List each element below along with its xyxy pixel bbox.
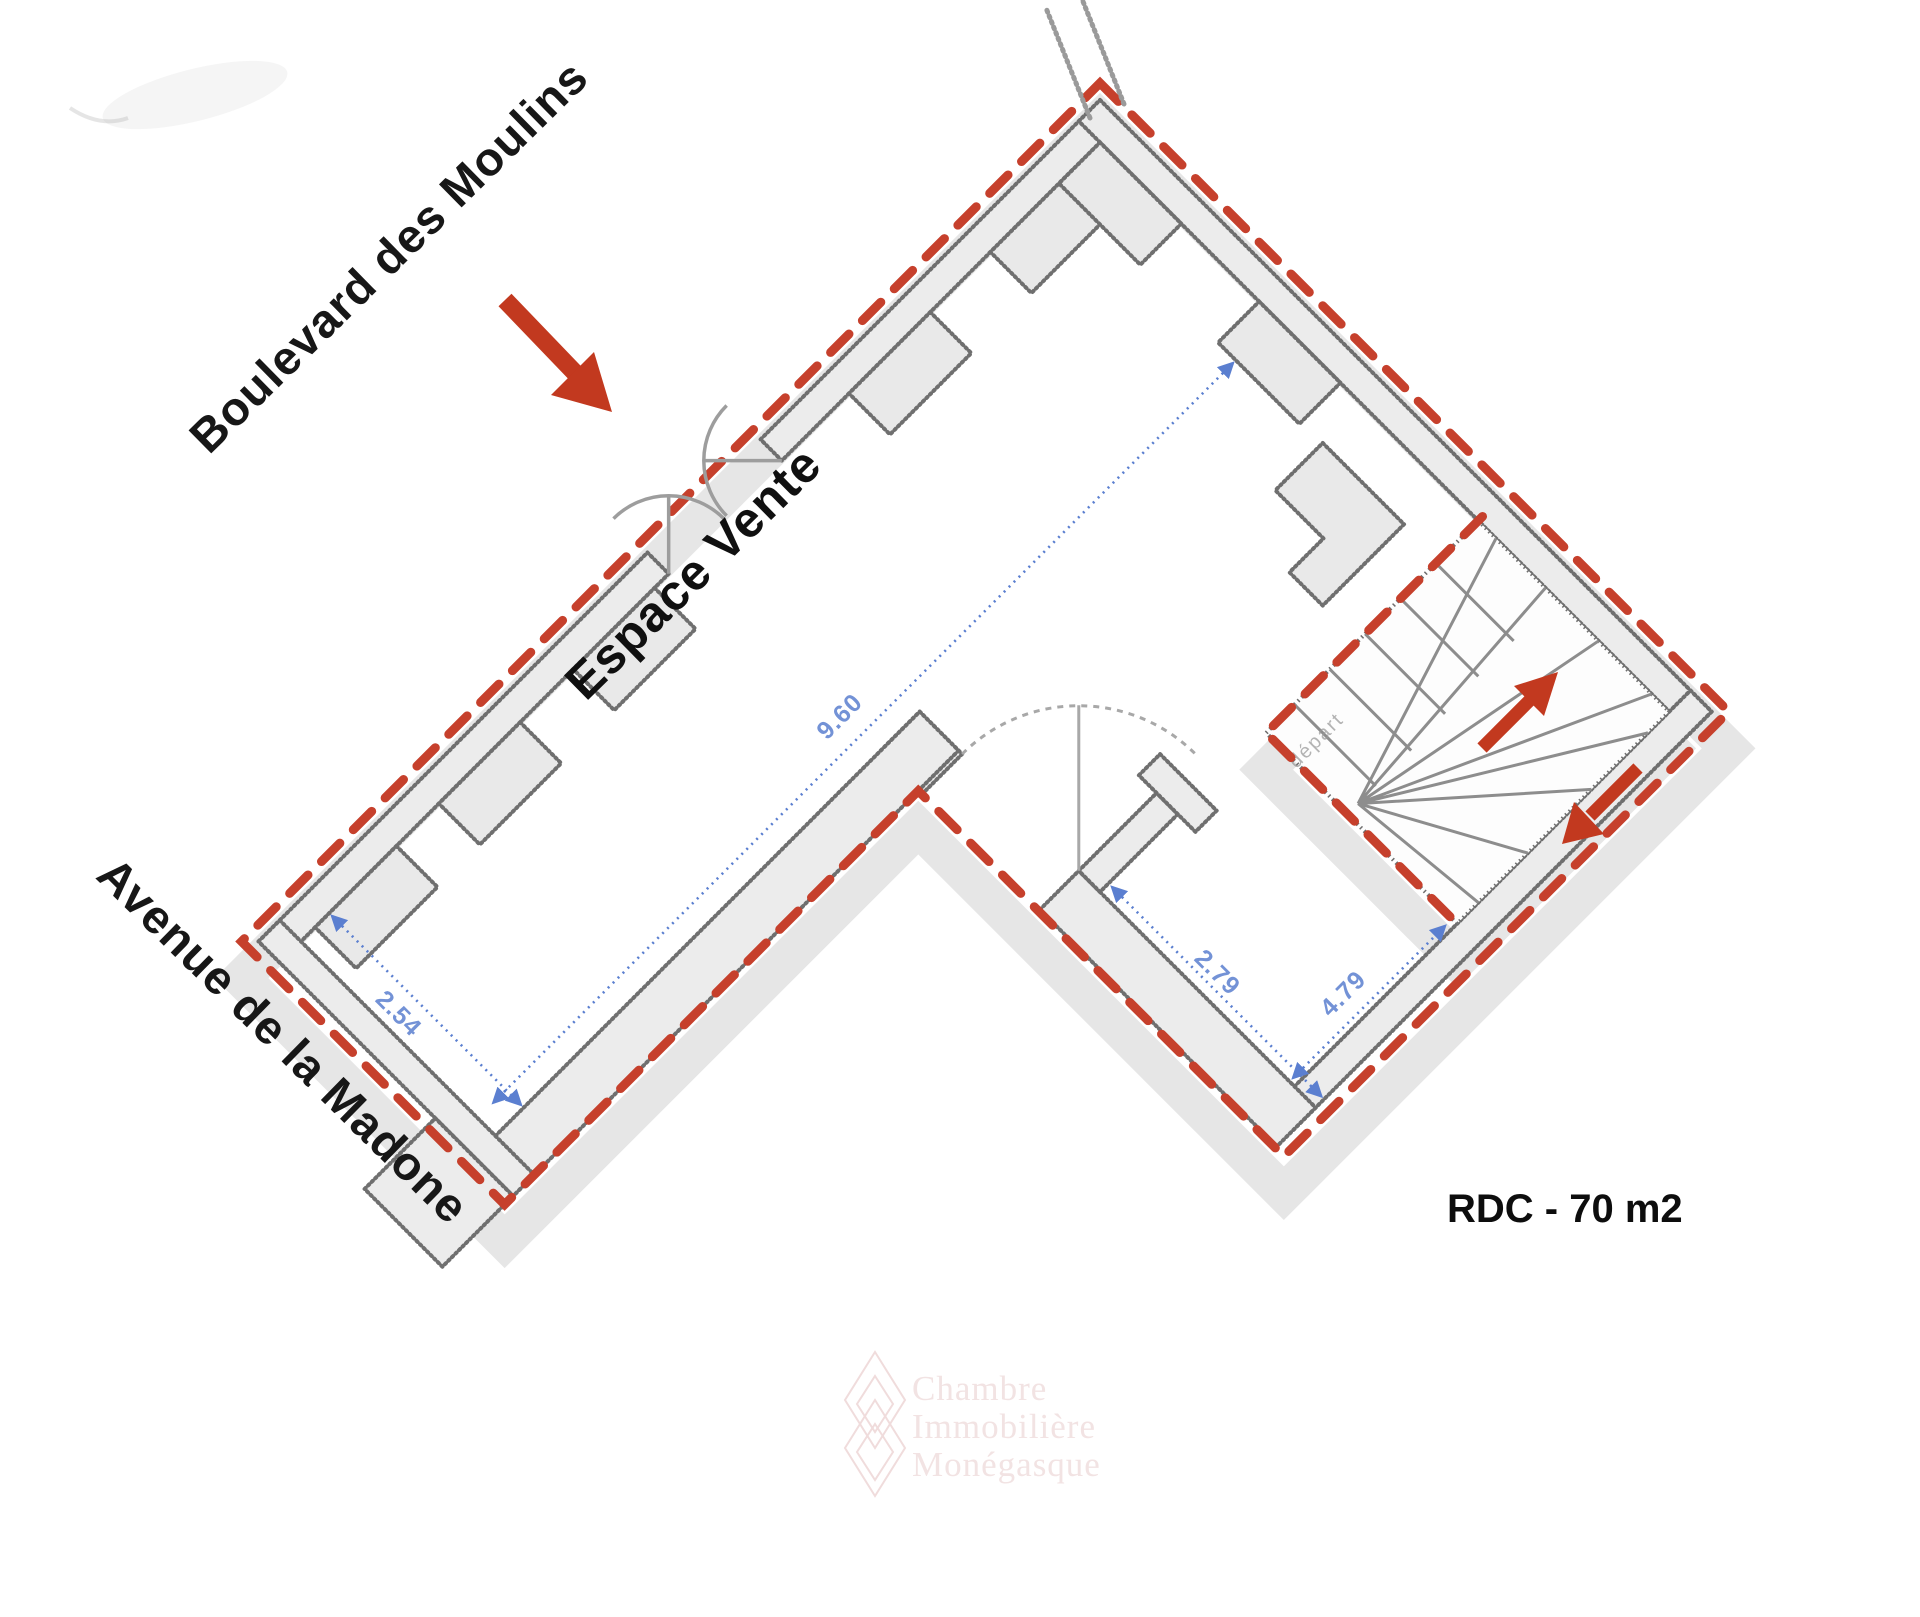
floor-plan-page: départ 9.60 2.54 2.79 4.79 bbox=[0, 0, 1920, 1617]
wall-door-stub bbox=[1079, 793, 1178, 892]
wall-street-upper bbox=[761, 100, 1122, 461]
floor-plan-svg: départ 9.60 2.54 2.79 4.79 bbox=[0, 0, 1920, 1617]
watermark: Chambre Immobilière Monégasque bbox=[845, 1352, 1101, 1496]
dim-label-length: 9.60 bbox=[811, 688, 868, 745]
watermark-logo-icon bbox=[845, 1352, 905, 1496]
wall-wing-bottom bbox=[474, 712, 958, 1196]
watermark-line2: Immobilière bbox=[912, 1407, 1096, 1446]
scan-smudge bbox=[70, 47, 293, 143]
corridor-wall-line bbox=[1046, 8, 1090, 118]
dim-label-back-length: 4.79 bbox=[1315, 965, 1372, 1022]
entrance-arrow-shaft bbox=[505, 300, 578, 376]
column-pillar bbox=[1241, 443, 1404, 606]
watermark-line1: Chambre bbox=[912, 1369, 1047, 1408]
floor-area-label: RDC - 70 m2 bbox=[1447, 1187, 1683, 1231]
entrance-arrow-icon bbox=[505, 300, 612, 412]
street-label-boulevard: Boulevard des Moulins bbox=[179, 50, 598, 463]
room-label-espace-vente: Espace Vente bbox=[554, 436, 832, 710]
watermark-line3: Monégasque bbox=[912, 1445, 1101, 1484]
wall-street-lower bbox=[259, 553, 669, 963]
